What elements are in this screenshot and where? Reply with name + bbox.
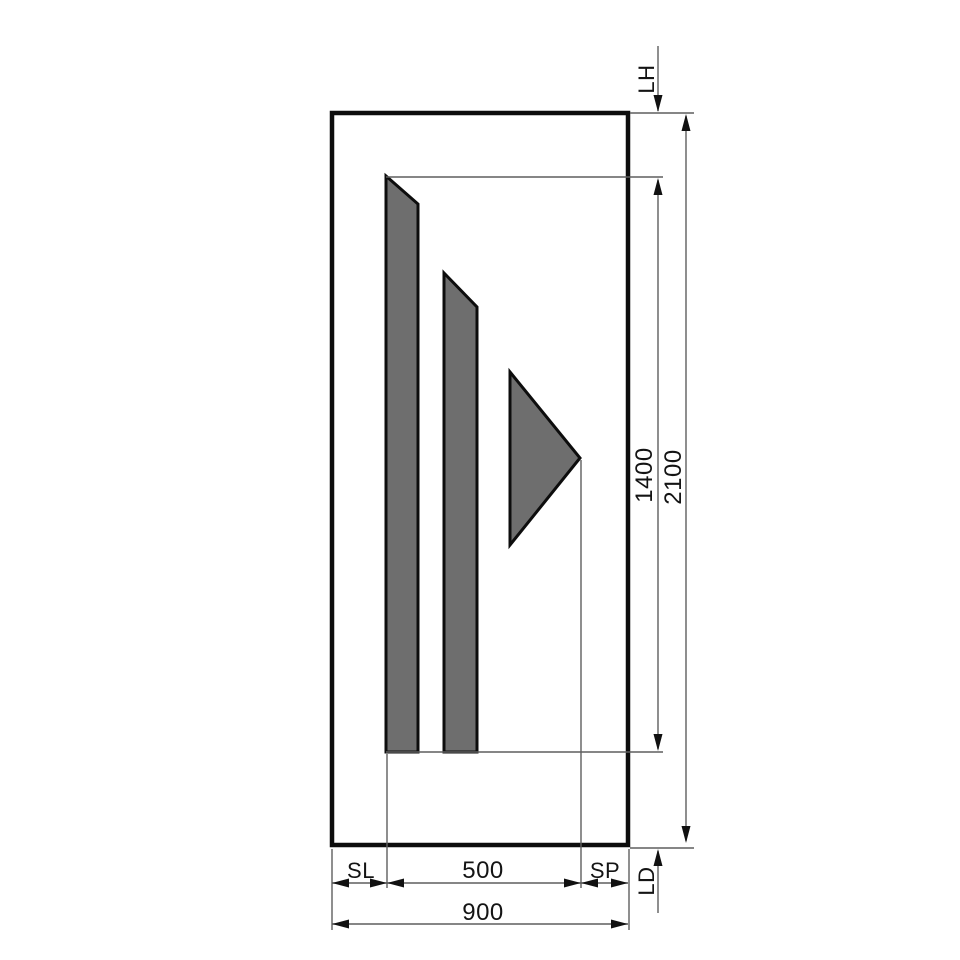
arrow-ld-up <box>654 849 663 866</box>
arrow-900-left <box>332 920 349 929</box>
arrow-lh-down <box>654 95 663 112</box>
label-glass-width: 500 <box>462 857 504 884</box>
label-side-left: SL <box>347 858 375 883</box>
arrow-2100-top <box>682 114 691 131</box>
arrow-2100-bottom <box>682 826 691 843</box>
glass-bar-left <box>386 176 418 752</box>
door-dimension-drawing: LH 1400 2100 LD SL 500 SP 900 <box>0 0 960 960</box>
door-leaf-outline <box>332 113 628 845</box>
label-total-width: 900 <box>462 899 504 926</box>
arrow-900-right <box>611 920 628 929</box>
glass-bar-middle <box>444 273 477 752</box>
arrow-500-right <box>564 879 581 888</box>
drawing-svg: LH 1400 2100 LD SL 500 SP 900 <box>0 0 960 960</box>
arrow-500-left <box>387 879 404 888</box>
label-total-height: 2100 <box>660 449 687 504</box>
label-sill-depth: LD <box>634 866 659 895</box>
arrow-1400-bottom <box>654 734 663 751</box>
arrow-1400-top <box>654 178 663 195</box>
label-lintel-height: LH <box>634 64 659 93</box>
label-side-right: SP <box>590 858 620 883</box>
label-glass-height: 1400 <box>631 447 658 502</box>
